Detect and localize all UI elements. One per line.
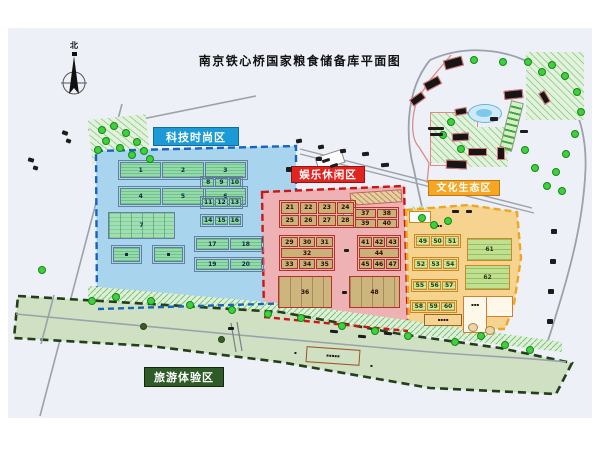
tree-icon: [470, 56, 478, 64]
zone-label-tech: 科技时尚区: [153, 127, 239, 146]
tree-icon: [404, 332, 412, 340]
building-25: 25: [281, 215, 299, 227]
building-39: 39: [355, 219, 376, 228]
building-block-f6: 48: [349, 276, 400, 308]
compass: 北: [56, 42, 92, 104]
building-block-t7: 1718: [194, 236, 264, 252]
small-text-marker: [520, 130, 528, 133]
tree-icon: [98, 126, 106, 134]
building-56: 56: [428, 281, 442, 290]
culture-hall-label: ▪▪▪: [471, 303, 479, 307]
building-58: 58: [412, 302, 426, 311]
small-text-marker: [428, 127, 444, 130]
tree-icon: [501, 341, 509, 349]
tree-icon: [102, 137, 110, 145]
building-block-f4: 41424344454647: [357, 235, 401, 271]
building-49: 49: [416, 236, 430, 246]
building-▪: ▪: [113, 247, 140, 262]
building-4: 4: [120, 188, 161, 205]
building-33: 33: [281, 259, 298, 269]
tree-icon: [297, 314, 305, 322]
building-block-t8: 1920: [194, 257, 264, 272]
building-block-t5: 111213: [200, 196, 243, 209]
building-block-f3: 29303132333435: [279, 235, 335, 271]
building-block-f2: 37383940: [353, 207, 399, 228]
compass-north-label: 北: [56, 42, 92, 50]
building-14: 14: [202, 216, 214, 225]
building-28: 28: [337, 215, 355, 227]
park-building: [452, 133, 469, 142]
tree-icon: [526, 346, 534, 354]
small-text-marker: [228, 327, 234, 330]
building-20: 20: [230, 259, 263, 270]
building-9: 9: [215, 178, 227, 187]
tree-icon: [451, 338, 459, 346]
tree-icon: [571, 130, 579, 138]
small-text-marker: [466, 210, 472, 213]
building-46: 46: [373, 259, 386, 269]
building-41: 41: [359, 237, 372, 247]
page-title: 南京铁心桥国家粮食储备库平面图: [150, 52, 450, 69]
building-21: 21: [281, 202, 299, 214]
tree-icon: [146, 155, 154, 163]
tree-icon: [524, 58, 532, 66]
grass-hatch-patch: [88, 114, 150, 164]
river-label: ▪▪▪▪▪: [326, 354, 340, 359]
building-53: 53: [429, 259, 443, 269]
tree-icon: [94, 146, 102, 154]
building-10: 10: [229, 178, 241, 187]
building-▪: ▪: [154, 247, 183, 262]
building-48: 48: [351, 278, 398, 306]
small-text-marker: [362, 152, 369, 157]
tree-icon: [371, 327, 379, 335]
tree-icon: [430, 221, 438, 229]
building-51: 51: [445, 236, 459, 246]
tree-icon: [499, 58, 507, 66]
compass-north-arrow-icon: [56, 50, 92, 102]
building-block-f1: 2122232425262728: [279, 200, 356, 228]
building-61: 61: [469, 240, 510, 259]
tree-icon: [133, 138, 141, 146]
building-38: 38: [377, 209, 398, 218]
building-30: 30: [299, 237, 316, 247]
building-19: 19: [196, 259, 229, 270]
building-block-t10: ▪: [152, 245, 185, 264]
building-43: 43: [386, 237, 399, 247]
zone-label-culture: 文化生态区: [428, 180, 500, 196]
tree-icon: [338, 322, 346, 330]
building-5: 5: [162, 188, 203, 205]
tree-icon: [88, 297, 96, 305]
building-59: 59: [427, 302, 441, 311]
small-text-marker: [551, 229, 557, 234]
park-building: [468, 148, 487, 156]
building-34: 34: [299, 259, 316, 269]
small-text-marker: [490, 117, 498, 121]
building-13: 13: [229, 198, 241, 207]
tree-icon: [447, 118, 455, 126]
tree-icon: [573, 88, 581, 96]
building-1: 1: [120, 162, 161, 178]
tree-icon: [561, 72, 569, 80]
tree-icon: [147, 297, 155, 305]
tree-icon: [577, 108, 585, 116]
tree-icon: [558, 187, 566, 195]
building-40: 40: [377, 219, 398, 228]
tree-icon: [186, 301, 194, 309]
tree-icon: [543, 182, 551, 190]
tree-icon: [110, 122, 118, 130]
tree-icon: [218, 336, 225, 343]
site-plan-page: { "title": "南京铁心桥国家粮食储备库平面图", "compass":…: [0, 0, 600, 450]
small-text-marker: [547, 319, 553, 324]
tree-icon: [444, 217, 452, 225]
building-8: 8: [202, 178, 214, 187]
building-54: 54: [443, 259, 457, 269]
tree-icon: [457, 145, 465, 153]
culture-hall-building: ▪▪▪: [463, 296, 511, 331]
park-building: [497, 147, 505, 160]
culture-bottom-label-box: ▪▪▪▪: [424, 314, 462, 326]
building-block-c3: 555657: [411, 279, 458, 292]
building-7: 7: [110, 214, 173, 237]
tree-icon: [116, 144, 124, 152]
building-36: 36: [280, 278, 330, 306]
river-char-left: ▪: [294, 351, 297, 355]
building-block-t3: 7: [108, 212, 175, 239]
tree-icon: [552, 168, 560, 176]
building-26: 26: [300, 215, 318, 227]
building-47: 47: [386, 259, 399, 269]
tree-icon: [521, 146, 529, 154]
building-15: 15: [215, 216, 227, 225]
building-29: 29: [281, 237, 298, 247]
building-12: 12: [215, 198, 227, 207]
building-block-t6: 141516: [200, 214, 243, 227]
tree-icon: [140, 147, 148, 155]
small-text-marker: [550, 259, 556, 264]
tree-icon: [140, 323, 147, 330]
culture-bottom-label: ▪▪▪▪: [438, 318, 449, 322]
tree-icon: [112, 293, 120, 301]
tree-icon: [418, 214, 426, 222]
park-building: [446, 160, 467, 170]
building-block-c5: 61: [467, 238, 512, 261]
building-23: 23: [318, 202, 336, 214]
small-text-marker: [358, 335, 366, 339]
building-block-t9: ▪: [111, 245, 142, 264]
building-2: 2: [162, 162, 203, 178]
building-block-c4: 585960: [410, 300, 457, 313]
zone-label-leisure: 娱乐休闲区: [291, 166, 365, 183]
small-text-marker: [381, 163, 389, 168]
tree-icon: [228, 306, 236, 314]
small-text-marker: [548, 289, 554, 294]
building-block-c6: 62: [465, 265, 510, 290]
building-62: 62: [467, 267, 508, 288]
building-44: 44: [359, 248, 399, 258]
building-24: 24: [337, 202, 355, 214]
building-18: 18: [230, 238, 263, 250]
building-block-c1: 495051: [414, 234, 461, 248]
tank-icon: [468, 323, 478, 332]
building-block-f5: 36: [278, 276, 332, 308]
zone-label-tourism: 旅游体验区: [144, 367, 224, 387]
small-text-marker: [330, 330, 338, 334]
river-char-right: ▪: [370, 364, 373, 368]
building-17: 17: [196, 238, 229, 250]
building-block-c2: 525354: [412, 257, 459, 271]
tree-icon: [531, 164, 539, 172]
tree-icon: [122, 129, 130, 137]
tree-icon: [128, 151, 136, 159]
small-text-marker: [340, 149, 346, 154]
building-55: 55: [413, 281, 427, 290]
building-42: 42: [373, 237, 386, 247]
building-60: 60: [441, 302, 455, 311]
small-text-marker: [286, 167, 292, 172]
tank-icon: [485, 326, 495, 335]
tree-icon: [562, 150, 570, 158]
pond-water: [476, 109, 492, 117]
building-57: 57: [442, 281, 456, 290]
small-text-marker: [384, 332, 392, 336]
building-52: 52: [414, 259, 428, 269]
building-27: 27: [318, 215, 336, 227]
building-37: 37: [355, 209, 376, 218]
small-text-marker: [452, 210, 459, 213]
building-50: 50: [431, 236, 445, 246]
building-35: 35: [316, 259, 333, 269]
tree-icon: [38, 266, 46, 274]
tree-icon: [264, 310, 272, 318]
tree-icon: [548, 61, 556, 69]
small-text-marker: [344, 249, 349, 252]
building-32: 32: [281, 248, 333, 258]
tree-icon: [538, 68, 546, 76]
building-block-t4: 8910: [200, 176, 243, 189]
small-text-marker: [430, 133, 443, 136]
building-16: 16: [229, 216, 241, 225]
small-text-marker: [316, 157, 322, 161]
small-text-marker: [342, 291, 347, 294]
building-11: 11: [202, 198, 214, 207]
building-22: 22: [300, 202, 318, 214]
building-31: 31: [316, 237, 333, 247]
tree-icon: [477, 332, 485, 340]
building-45: 45: [359, 259, 372, 269]
